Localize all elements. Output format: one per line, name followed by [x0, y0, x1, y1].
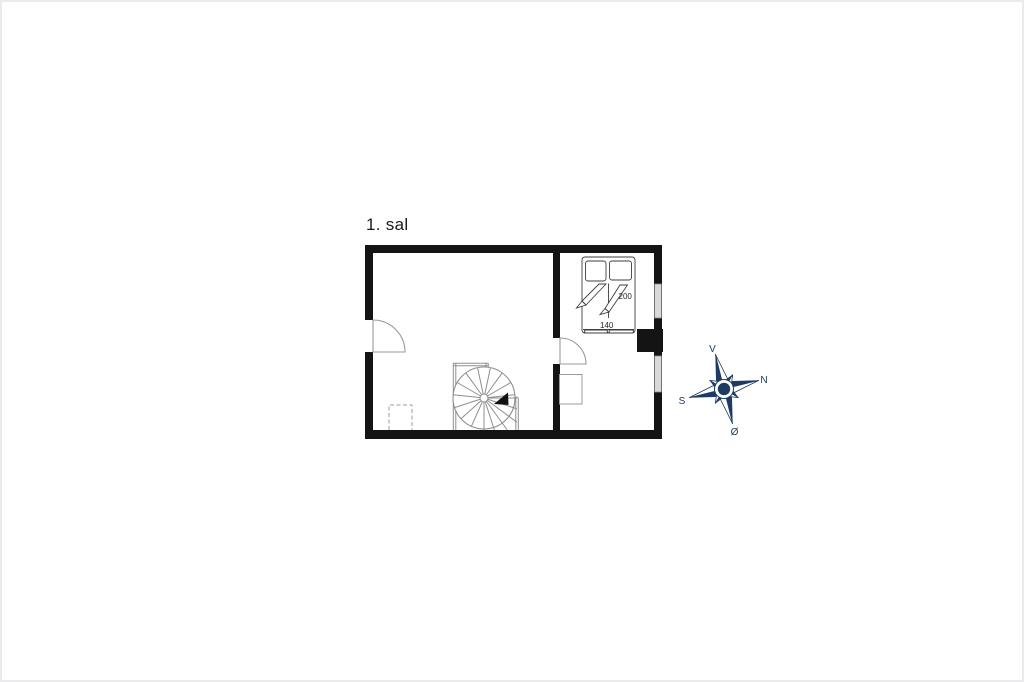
compass-label-n: N — [760, 375, 767, 386]
wall-left-lower — [365, 352, 373, 439]
compass-label-v: V — [709, 344, 716, 355]
compass-label-o: Ø — [731, 427, 739, 438]
wall-top — [365, 245, 662, 253]
bed-foot-left — [585, 330, 608, 333]
window-upper — [655, 284, 662, 318]
double-bed: 200 140 — [577, 257, 636, 333]
staircase-center-pole — [480, 394, 488, 402]
bed-foot-right — [609, 330, 634, 333]
side-table — [560, 375, 583, 405]
compass-rose: V N S Ø — [679, 344, 768, 438]
wall-interior-upper — [553, 253, 560, 338]
wall-left-upper — [365, 245, 373, 320]
window-lower — [655, 356, 662, 392]
bed-pillow-left — [586, 261, 607, 281]
floor-plan-canvas: 200 140 — [2, 2, 1024, 682]
wall-interior-lower — [553, 364, 560, 430]
compass-label-s: S — [679, 396, 686, 407]
bed-length-label: 200 — [619, 292, 633, 301]
chimney-block — [637, 329, 663, 352]
bed-pillow-right — [610, 261, 632, 280]
floor-plan-page: 1. sal — [0, 0, 1024, 682]
wall-bottom — [365, 430, 662, 439]
bed-width-label: 140 — [600, 321, 614, 330]
